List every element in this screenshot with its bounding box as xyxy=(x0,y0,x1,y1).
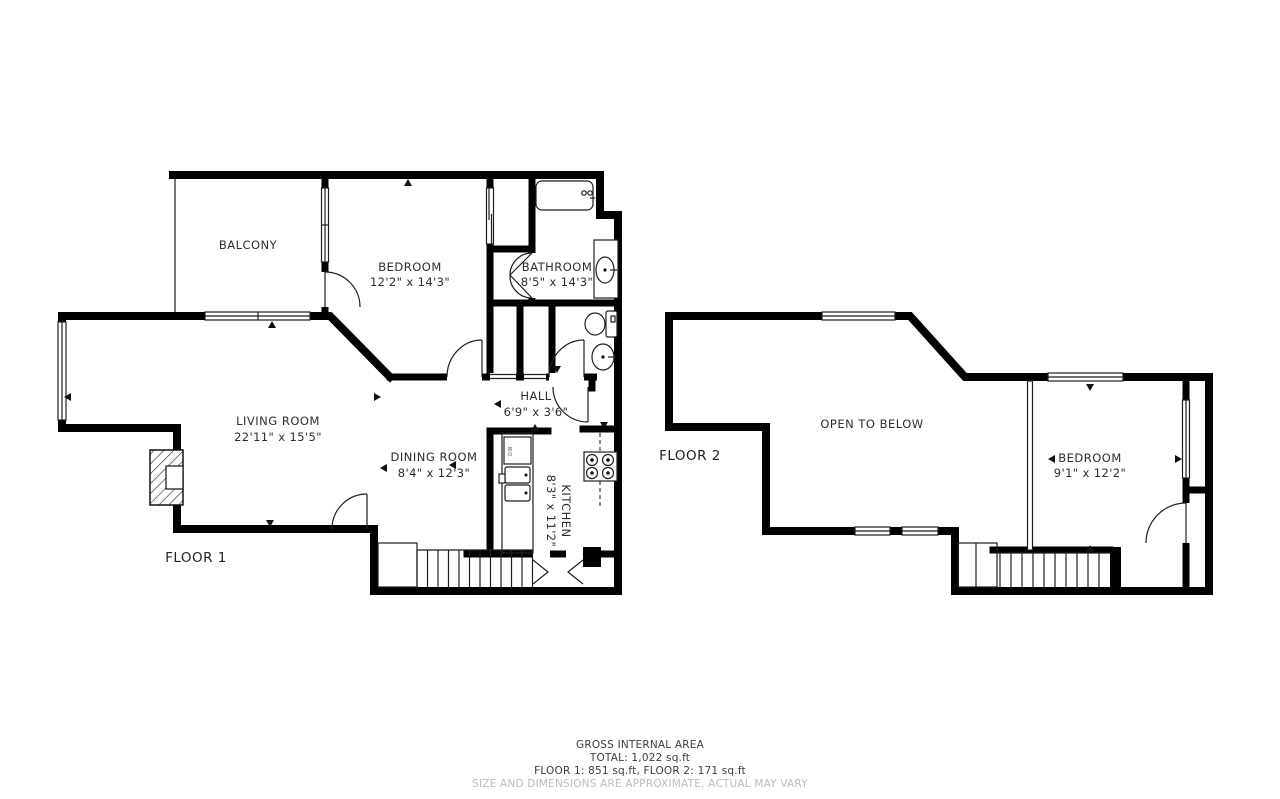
balcony-label: BALCONY xyxy=(219,238,278,252)
floorplan-page: DW xyxy=(0,0,1280,799)
floor2-bedroom-top-window xyxy=(1048,373,1123,381)
footer-title: GROSS INTERNAL AREA xyxy=(576,739,705,751)
footer-total: TOTAL: 1,022 sq.ft xyxy=(589,752,690,764)
floor2-bedroom-label: BEDROOM xyxy=(1058,451,1122,465)
dining-room-dims: 8'4" x 12'3" xyxy=(398,466,470,480)
living-bedroom-door xyxy=(447,340,482,377)
floor2-bottom-window-1 xyxy=(855,527,890,535)
floor1-windows xyxy=(58,188,546,420)
entry-wall-stub xyxy=(583,547,601,567)
entry-door-chevrons xyxy=(533,560,583,584)
wc-sink xyxy=(592,344,616,370)
floor2-bedroom-dims: 9'1" x 12'2" xyxy=(1054,466,1126,480)
floorplan-canvas: DW xyxy=(0,0,1280,799)
floor2-exterior-walls xyxy=(669,316,1209,591)
floor2-bottom-window-2 xyxy=(902,527,938,535)
bedroom-closet-slider xyxy=(487,188,494,244)
bathroom-vanity-sink xyxy=(594,240,618,298)
floor1-labels: BALCONY BEDROOM 12'2" x 14'3" BATHROOM 8… xyxy=(165,238,593,566)
floor1-stairs xyxy=(378,543,533,587)
balcony-glass-slider xyxy=(322,188,329,262)
kitchen-label-group: KITCHEN 8'3" x 11'2" xyxy=(544,475,573,547)
dishwasher-label: DW xyxy=(508,446,514,456)
footer-floor-areas: FLOOR 1: 851 sq.ft, FLOOR 2: 171 sq.ft xyxy=(534,765,746,777)
bathroom-dims: 8'5" x 14'3" xyxy=(521,275,593,289)
floor2-interior-walls xyxy=(993,381,1209,591)
living-room-label: LIVING ROOM xyxy=(236,414,320,428)
floor2-partition-wall xyxy=(1028,381,1033,550)
footer: GROSS INTERNAL AREA TOTAL: 1,022 sq.ft F… xyxy=(472,739,808,790)
open-to-below-label: OPEN TO BELOW xyxy=(820,417,923,431)
living-room-left-window xyxy=(58,322,66,420)
bathtub xyxy=(536,181,595,210)
floor2-bedroom-door xyxy=(1146,503,1186,543)
kitchen-counter-left: DW xyxy=(499,433,533,553)
floor2-title: FLOOR 2 xyxy=(659,448,721,464)
kitchen-dims: 8'3" x 11'2" xyxy=(544,475,558,547)
floor2-top-left-window xyxy=(822,312,895,320)
floor1-plan: DW xyxy=(57,175,618,591)
dining-room-label: DINING ROOM xyxy=(391,450,478,464)
kitchen-label: KITCHEN xyxy=(559,484,573,537)
hall-label: HALL xyxy=(520,389,551,403)
floor2-plan: OPEN TO BELOW BEDROOM 9'1" x 12'2" FLOOR… xyxy=(659,311,1209,591)
kitchen-sink xyxy=(499,467,530,501)
living-room-top-window xyxy=(205,312,310,320)
wc-toilet xyxy=(585,311,617,337)
footer-disclaimer: SIZE AND DIMENSIONS ARE APPROXIMATE, ACT… xyxy=(472,778,808,790)
floor1-title: FLOOR 1 xyxy=(165,550,227,566)
floor2-bedroom-right-window xyxy=(1183,400,1190,478)
hall-dims: 6'9" x 3'6" xyxy=(504,405,569,419)
floor1-bedroom-label: BEDROOM xyxy=(378,260,442,274)
living-room-door xyxy=(332,494,367,529)
floor1-bedroom-dims: 12'2" x 14'3" xyxy=(370,275,450,289)
bathroom-label: BATHROOM xyxy=(522,260,593,274)
living-room-dims: 22'11" x 15'5" xyxy=(234,430,322,444)
floor1-interior-walls xyxy=(325,175,618,567)
fireplace xyxy=(150,450,183,505)
balcony-bedroom-door xyxy=(325,272,360,307)
kitchen-stove xyxy=(584,433,617,508)
